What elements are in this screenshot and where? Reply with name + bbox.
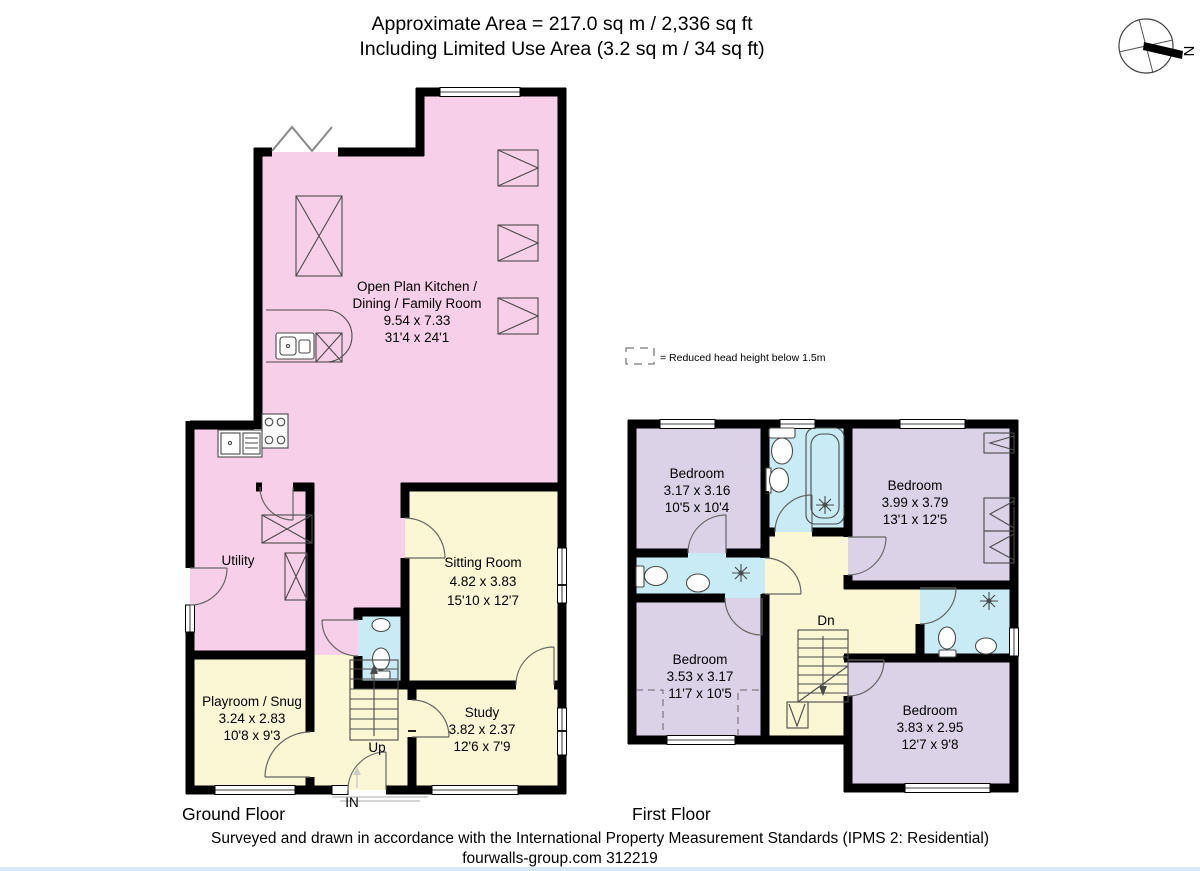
bedroom2-metric: 3.99 x 3.79 xyxy=(882,495,949,510)
sitting-metric: 4.82 x 3.83 xyxy=(450,574,517,589)
utility-fixtures xyxy=(218,430,262,457)
approx-area-text: Approximate Area = 217.0 sq m / 2,336 sq… xyxy=(371,13,753,35)
bedroom3-imperial: 11'7 x 10'5 xyxy=(668,686,731,701)
ground-floor-title: Ground Floor xyxy=(182,804,285,824)
floorplan-canvas: Approximate Area = 217.0 sq m / 2,336 sq… xyxy=(0,0,1200,871)
legend: = Reduced head height below 1.5m xyxy=(626,348,826,364)
bedroom4-imperial: 12'7 x 9'8 xyxy=(902,737,959,752)
reduced-head-height-symbol xyxy=(626,348,654,364)
study-label: Study xyxy=(465,705,500,720)
kitchen-imperial: 31'4 x 24'1 xyxy=(385,330,449,345)
kitchen-metric: 9.54 x 7.33 xyxy=(384,313,451,328)
bottom-edge-strip xyxy=(0,867,1200,871)
header: Approximate Area = 217.0 sq m / 2,336 sq… xyxy=(359,13,764,60)
bedroom2-label: Bedroom xyxy=(888,478,943,493)
bedroom1-label: Bedroom xyxy=(670,466,725,481)
first-floor-title: First Floor xyxy=(632,804,711,824)
bedroom1-metric: 3.17 x 3.16 xyxy=(664,483,731,498)
compass-icon: N xyxy=(1119,19,1197,73)
bedroom1-imperial: 10'5 x 10'4 xyxy=(665,500,730,515)
playroom-label: Playroom / Snug xyxy=(202,694,302,709)
playroom-imperial: 10'8 x 9'3 xyxy=(224,728,281,743)
limited-use-area-text: Including Limited Use Area (3.2 sq m / 3… xyxy=(359,38,764,60)
bedroom4-metric: 3.83 x 2.95 xyxy=(897,720,964,735)
ground-floor-plan: Open Plan Kitchen / Dining / Family Room… xyxy=(182,88,567,825)
bedroom4-label: Bedroom xyxy=(903,703,958,718)
kitchen-label-2: Dining / Family Room xyxy=(352,296,481,311)
compass-north-label: N xyxy=(1180,46,1197,57)
surveyor-reference: fourwalls-group.com 312219 xyxy=(462,850,658,867)
footer: Surveyed and drawn in accordance with th… xyxy=(211,830,989,867)
entrance-in-label: IN xyxy=(345,795,359,810)
bedroom3-metric: 3.53 x 3.17 xyxy=(667,669,734,684)
sitting-label: Sitting Room xyxy=(444,555,521,570)
playroom-metric: 3.24 x 2.83 xyxy=(219,711,286,726)
bedroom2-imperial: 13'1 x 12'5 xyxy=(883,512,947,527)
first-floor-plan: Bedroom 3.17 x 3.16 10'5 x 10'4 Bedroom … xyxy=(628,420,1019,825)
legend-label: = Reduced head height below 1.5m xyxy=(660,352,826,364)
study-imperial: 12'6 x 7'9 xyxy=(454,739,511,754)
bedroom3-label: Bedroom xyxy=(673,652,728,667)
utility-label: Utility xyxy=(222,553,255,568)
kitchen-label: Open Plan Kitchen / xyxy=(357,279,477,294)
ipms-statement: Surveyed and drawn in accordance with th… xyxy=(211,830,989,847)
stairs-up-label: Up xyxy=(368,740,385,755)
study-metric: 3.82 x 2.37 xyxy=(449,722,516,737)
sitting-imperial: 15'10 x 12'7 xyxy=(447,593,519,608)
stairs-dn-label: Dn xyxy=(817,613,834,628)
